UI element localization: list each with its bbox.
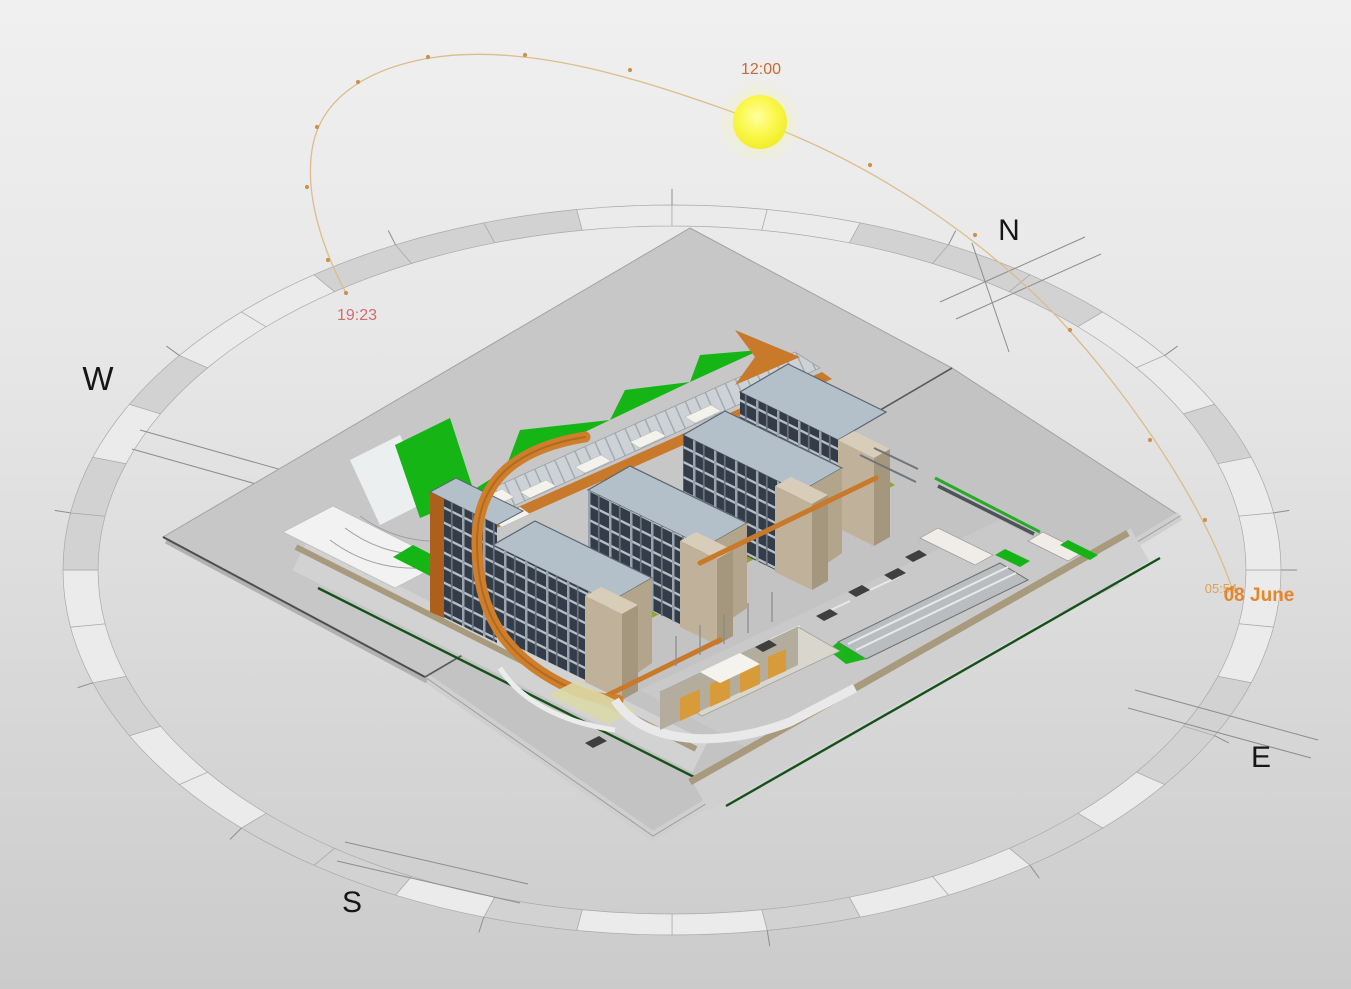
compass-ring-segment bbox=[672, 205, 767, 230]
compass-ring-segment bbox=[577, 910, 672, 935]
compass-tick bbox=[1165, 346, 1178, 355]
compass-ring-segment bbox=[179, 772, 266, 828]
sun-path-hour-dot bbox=[1203, 518, 1207, 522]
compass-label-east: E bbox=[1251, 741, 1271, 774]
sun-path-hour-dot bbox=[973, 233, 977, 237]
compass-ring-segment bbox=[484, 897, 582, 930]
compass-tick bbox=[1215, 736, 1229, 743]
sun-path-hour-dot bbox=[315, 125, 319, 129]
compass-tick bbox=[55, 510, 71, 513]
compass-ring-segment bbox=[70, 457, 126, 516]
compass-ring-segment bbox=[129, 355, 207, 413]
compass-ring-segment bbox=[762, 209, 860, 242]
compass-ring-segment bbox=[129, 726, 207, 784]
sun[interactable] bbox=[733, 95, 787, 149]
compass-ring-segment bbox=[849, 223, 948, 264]
sun-path-hour-dot bbox=[326, 258, 330, 262]
compass-ring-segment bbox=[1239, 513, 1281, 570]
compass-ring-segment bbox=[1218, 457, 1274, 516]
compass-tick bbox=[166, 346, 179, 355]
date-label[interactable]: 08 June bbox=[1224, 585, 1295, 606]
sun-path-hour-dot bbox=[868, 163, 872, 167]
compass-tick bbox=[1030, 865, 1039, 878]
compass-ring-segment bbox=[933, 848, 1030, 895]
compass-ring-segment bbox=[849, 877, 948, 918]
compass-ring-segment bbox=[1009, 275, 1102, 327]
sun-path-hour-dot bbox=[1148, 438, 1152, 442]
sunset-time-label: 19:23 bbox=[337, 307, 377, 324]
sun-path-hour-dot bbox=[628, 68, 632, 72]
compass-label-south: S bbox=[342, 886, 362, 919]
orange-end-wall bbox=[430, 492, 444, 618]
compass-ring-segment bbox=[70, 624, 126, 683]
compass-ring-segment bbox=[762, 897, 860, 930]
compass-ring-segment bbox=[484, 209, 582, 242]
compass-ring-segment bbox=[314, 848, 411, 895]
compass-ring-segment bbox=[1183, 404, 1251, 463]
compass-ring-segment bbox=[179, 312, 266, 368]
compass-ring-segment bbox=[1136, 726, 1214, 784]
compass-tick bbox=[388, 231, 395, 245]
stair-tower-side bbox=[717, 550, 733, 645]
compass-label-north: N bbox=[998, 214, 1020, 247]
compass-ring-segment bbox=[396, 877, 495, 918]
sun-path-hour-dot bbox=[426, 55, 430, 59]
stair-tower bbox=[585, 596, 622, 700]
compass-ring-segment bbox=[63, 513, 105, 570]
compass-ring-segment bbox=[1136, 355, 1214, 413]
compass-ring-segment bbox=[672, 910, 767, 935]
compass-ring-segment bbox=[93, 676, 161, 735]
compass-tick bbox=[78, 683, 93, 688]
scene-canvas: 12:00 19:23 05:54 08 June N W S E bbox=[0, 0, 1351, 989]
compass-tick bbox=[230, 828, 241, 839]
compass-tick bbox=[1274, 510, 1290, 513]
compass-ring-segment bbox=[1218, 624, 1274, 683]
compass-ring-segment bbox=[314, 245, 411, 292]
compass-ring-segment bbox=[1009, 813, 1102, 865]
compass-ring-segment bbox=[577, 205, 672, 230]
compass-tick bbox=[767, 931, 770, 947]
sun-path-hour-dot bbox=[1068, 328, 1072, 332]
sun-path-hour-dot bbox=[305, 185, 309, 189]
compass-ring-segment bbox=[63, 570, 105, 627]
sun-path-hour-dot bbox=[356, 80, 360, 84]
compass-ring-segment bbox=[93, 404, 161, 463]
compass-ring-segment bbox=[396, 223, 495, 264]
noon-time-label[interactable]: 12:00 bbox=[741, 61, 781, 78]
compass-ring-segment bbox=[241, 275, 334, 327]
stair-tower bbox=[775, 486, 812, 590]
compass-ring-segment bbox=[1078, 312, 1165, 368]
sun-path-hour-dot bbox=[523, 53, 527, 57]
compass-tick bbox=[479, 917, 484, 932]
compass-ring-segment bbox=[1078, 772, 1165, 828]
compass-label-west: W bbox=[82, 360, 114, 397]
sun-study-viewport: 12:00 19:23 05:54 08 June N W S E bbox=[0, 0, 1351, 989]
sun-path-hour-dot bbox=[344, 291, 348, 295]
compass-ring-segment bbox=[241, 813, 334, 865]
compass-tick bbox=[948, 231, 955, 245]
